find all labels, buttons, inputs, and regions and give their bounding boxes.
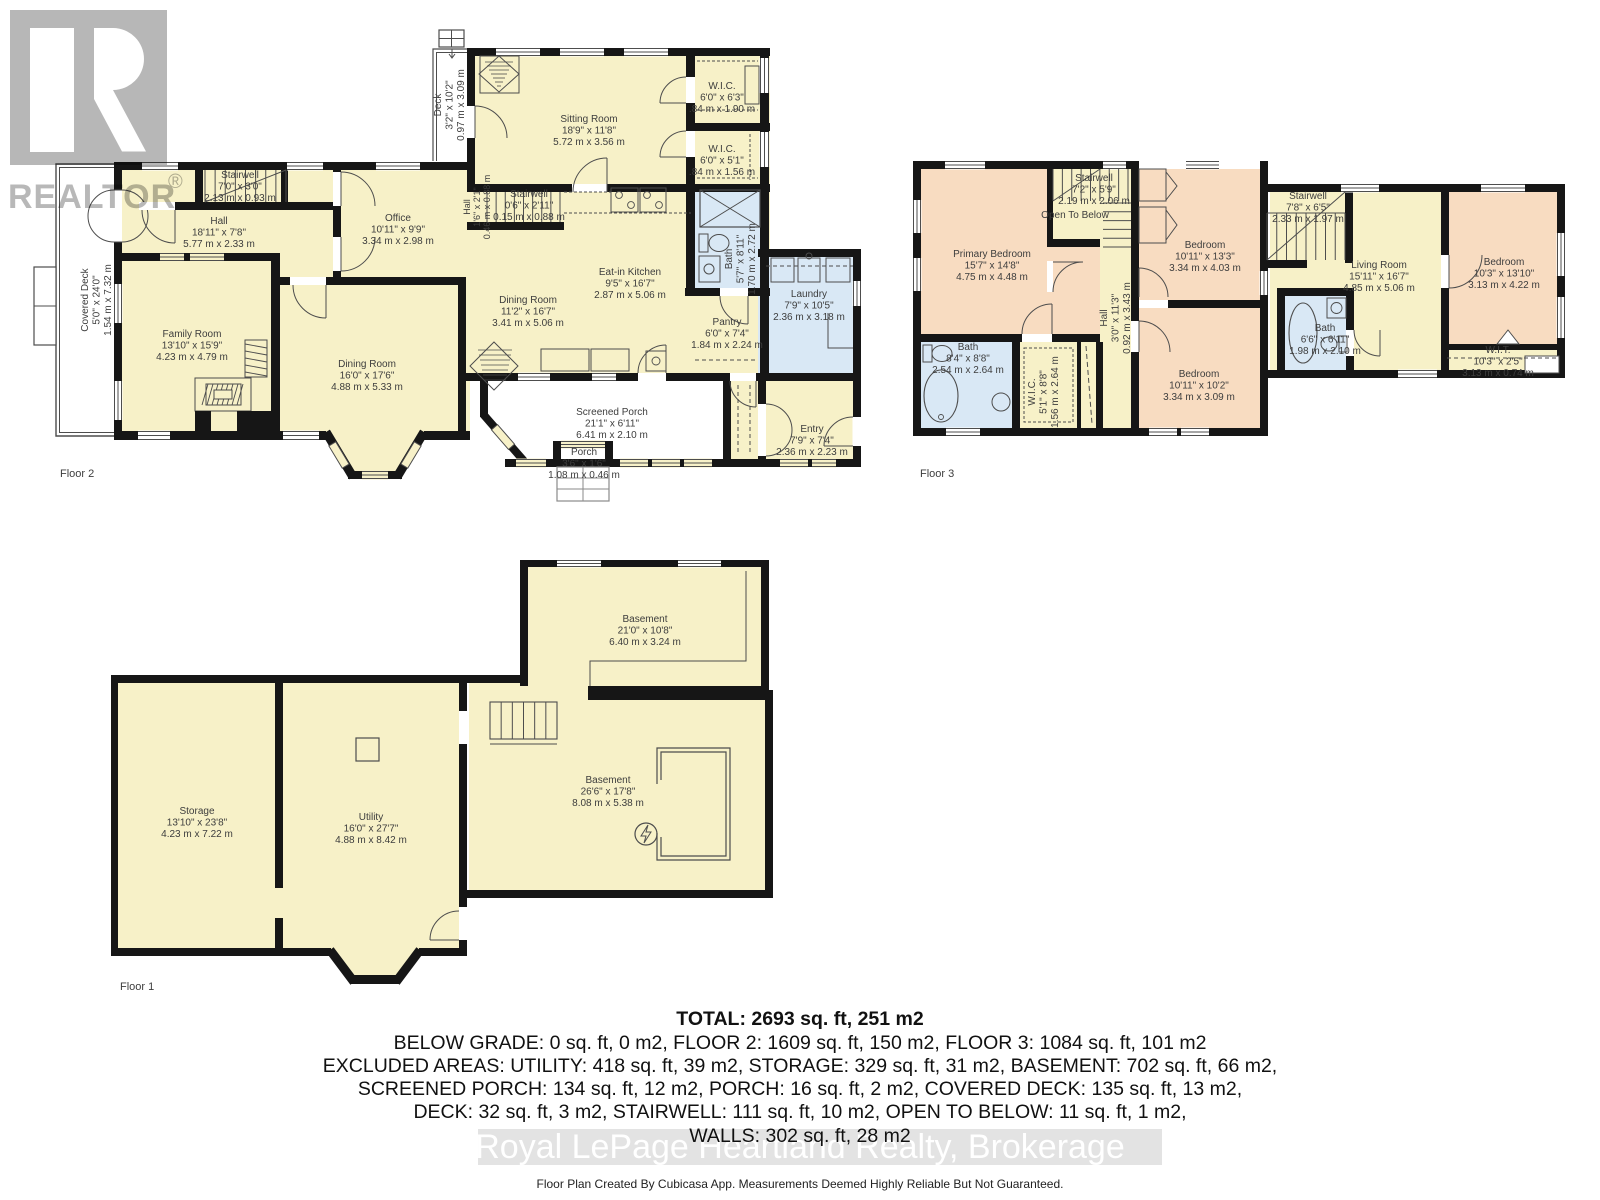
svg-text:7'2" x 5'9": 7'2" x 5'9" <box>1072 185 1116 196</box>
svg-text:Hall: Hall <box>210 216 227 227</box>
svg-text:6'0" x 7'4": 6'0" x 7'4" <box>705 329 749 340</box>
svg-text:W.I.T.: W.I.T. <box>1486 345 1511 356</box>
svg-text:Family Room: Family Room <box>163 329 222 340</box>
svg-text:5'1" x 8'8": 5'1" x 8'8" <box>1039 370 1050 414</box>
svg-text:11'2" x 16'7": 11'2" x 16'7" <box>501 307 556 318</box>
svg-text:0.46 m x 0.88 m: 0.46 m x 0.88 m <box>482 175 492 240</box>
svg-text:5.72 m x 3.56 m: 5.72 m x 3.56 m <box>553 137 625 148</box>
svg-text:3.34 m x 4.03 m: 3.34 m x 4.03 m <box>1169 263 1241 274</box>
svg-text:.84 m x 1.56 m: .84 m x 1.56 m <box>689 167 755 178</box>
svg-text:4.88 m x 5.33 m: 4.88 m x 5.33 m <box>331 382 403 393</box>
svg-text:REALTOR: REALTOR <box>8 178 176 216</box>
svg-text:2.36 m x 2.23 m: 2.36 m x 2.23 m <box>776 447 848 458</box>
svg-text:Sitting Room: Sitting Room <box>560 114 617 125</box>
svg-text:4.85 m x 5.06 m: 4.85 m x 5.06 m <box>1343 283 1415 294</box>
svg-text:Porch: Porch <box>571 447 597 458</box>
svg-text:2.54 m x 2.64 m: 2.54 m x 2.64 m <box>932 365 1004 376</box>
svg-text:Pantry: Pantry <box>713 317 742 328</box>
svg-text:W.I.C.: W.I.C. <box>708 81 735 92</box>
svg-text:4.75 m x 4.48 m: 4.75 m x 4.48 m <box>956 272 1028 283</box>
svg-text:3.41 m x 5.06 m: 3.41 m x 5.06 m <box>492 318 564 329</box>
svg-text:Bath: Bath <box>724 249 735 270</box>
svg-text:W.I.C.: W.I.C. <box>708 144 735 155</box>
svg-text:3'0" x 11'3": 3'0" x 11'3" <box>1111 293 1122 342</box>
svg-text:6'0" x 6'3": 6'0" x 6'3" <box>700 93 744 104</box>
svg-text:5'7" x 8'11": 5'7" x 8'11" <box>736 234 747 283</box>
svg-text:Stairwell: Stairwell <box>1289 191 1327 202</box>
svg-text:16'0" x 27'7": 16'0" x 27'7" <box>344 824 399 835</box>
svg-text:10'11" x 10'2": 10'11" x 10'2" <box>1169 381 1229 392</box>
svg-text:Deck: Deck <box>433 93 444 117</box>
svg-text:Storage: Storage <box>179 806 214 817</box>
svg-text:2.13 m x 0.93 m: 2.13 m x 0.93 m <box>204 193 276 204</box>
svg-text:Basement: Basement <box>585 775 630 786</box>
svg-text:1'6" x 2'1": 1'6" x 2'1" <box>472 187 482 226</box>
svg-text:Floor Plan Created By Cubicasa: Floor Plan Created By Cubicasa App. Meas… <box>537 1177 1064 1191</box>
svg-text:4.23 m x 4.79 m: 4.23 m x 4.79 m <box>156 352 228 363</box>
svg-text:Bedroom: Bedroom <box>1484 257 1525 268</box>
svg-text:Primary Bedroom: Primary Bedroom <box>953 249 1031 260</box>
svg-text:Bath: Bath <box>958 342 979 353</box>
svg-text:3.13 m x 4.22 m: 3.13 m x 4.22 m <box>1468 280 1540 291</box>
svg-text:Floor 1: Floor 1 <box>120 981 154 993</box>
svg-text:1.56 m x 2.64 m: 1.56 m x 2.64 m <box>1050 356 1061 428</box>
svg-text:13'10" x 15'9": 13'10" x 15'9" <box>162 341 223 352</box>
svg-text:13'10" x 23'8": 13'10" x 23'8" <box>167 818 228 829</box>
svg-text:0.92 m x 3.43 m: 0.92 m x 3.43 m <box>1122 282 1133 354</box>
svg-text:2.19 m x 2.06 m: 2.19 m x 2.06 m <box>1058 196 1130 207</box>
svg-text:3.34 m x 2.98 m: 3.34 m x 2.98 m <box>362 236 434 247</box>
svg-text:5'0" x 24'0": 5'0" x 24'0" <box>92 275 103 325</box>
svg-text:7'0" x 3'0": 7'0" x 3'0" <box>218 182 262 193</box>
svg-text:Screened Porch: Screened Porch <box>576 407 648 418</box>
svg-text:4.88 m x 8.42 m: 4.88 m x 8.42 m <box>335 835 407 846</box>
svg-text:Entry: Entry <box>800 424 823 435</box>
svg-text:1.08 m x 0.46 m: 1.08 m x 0.46 m <box>548 470 620 481</box>
svg-text:2.36 m x 3.18 m: 2.36 m x 3.18 m <box>773 312 845 323</box>
svg-text:Dining Room: Dining Room <box>499 295 557 306</box>
svg-text:9'5" x 16'7": 9'5" x 16'7" <box>605 279 655 290</box>
svg-text:SCREENED PORCH: 134 sq. ft, 12: SCREENED PORCH: 134 sq. ft, 12 m2, PORCH… <box>358 1078 1242 1100</box>
svg-text:Office: Office <box>385 213 411 224</box>
svg-text:6.40 m x 3.24 m: 6.40 m x 3.24 m <box>609 637 681 648</box>
svg-text:2.87 m x 5.06 m: 2.87 m x 5.06 m <box>594 290 666 301</box>
svg-text:3'6" x 1'6": 3'6" x 1'6" <box>562 459 606 470</box>
svg-text:Stairwell: Stairwell <box>221 170 259 181</box>
svg-text:4.23 m x 7.22 m: 4.23 m x 7.22 m <box>161 829 233 840</box>
svg-text:Laundry: Laundry <box>791 289 827 300</box>
svg-text:Dining Room: Dining Room <box>338 359 396 370</box>
svg-text:Living Room: Living Room <box>1351 260 1407 271</box>
svg-text:.84 m x 1.90 m: .84 m x 1.90 m <box>689 104 755 115</box>
svg-text:Bedroom: Bedroom <box>1179 369 1220 380</box>
svg-text:1.84 m x 2.24 m: 1.84 m x 2.24 m <box>691 340 763 351</box>
svg-text:0.97 m x 3.09 m: 0.97 m x 3.09 m <box>456 69 467 141</box>
svg-text:Bedroom: Bedroom <box>1185 240 1226 251</box>
svg-text:21'0" x 10'8": 21'0" x 10'8" <box>618 626 673 637</box>
svg-text:7'9" x 10'5": 7'9" x 10'5" <box>784 301 834 312</box>
svg-text:7'9" x 7'4": 7'9" x 7'4" <box>790 436 834 447</box>
svg-text:Stairwell: Stairwell <box>510 189 548 200</box>
svg-text:Eat-in Kitchen: Eat-in Kitchen <box>599 267 661 278</box>
svg-text:6'6" x 6'11": 6'6" x 6'11" <box>1301 335 1350 346</box>
svg-text:1.54 m x 7.32 m: 1.54 m x 7.32 m <box>103 264 114 336</box>
svg-text:®: ® <box>168 171 183 193</box>
svg-text:1.98 m x 2.10 m: 1.98 m x 2.10 m <box>1289 346 1361 357</box>
svg-text:Covered Deck: Covered Deck <box>80 267 91 331</box>
svg-text:Stairwell: Stairwell <box>1075 173 1113 184</box>
svg-text:Utility: Utility <box>359 812 383 823</box>
svg-text:Basement: Basement <box>622 614 667 625</box>
svg-text:0.15 m x 0.88 m: 0.15 m x 0.88 m <box>493 212 565 223</box>
svg-text:21'1" x 6'11": 21'1" x 6'11" <box>585 419 640 430</box>
svg-text:W.I.C.: W.I.C. <box>1027 378 1038 405</box>
svg-text:8'4" x 8'8": 8'4" x 8'8" <box>946 354 990 365</box>
svg-text:TOTAL: 2693 sq. ft, 251 m2: TOTAL: 2693 sq. ft, 251 m2 <box>676 1008 924 1030</box>
svg-text:10'3" x 13'10": 10'3" x 13'10" <box>1474 269 1535 280</box>
svg-text:0'6" x 2'11": 0'6" x 2'11" <box>505 201 554 212</box>
svg-text:6.41 m x 2.10 m: 6.41 m x 2.10 m <box>576 430 648 441</box>
svg-text:8.08 m x 5.38 m: 8.08 m x 5.38 m <box>572 798 644 809</box>
svg-text:3'2" x 10'2": 3'2" x 10'2" <box>445 80 456 130</box>
svg-text:5.77 m x 2.33 m: 5.77 m x 2.33 m <box>183 239 255 250</box>
svg-text:WALLS: 302 sq. ft, 28 m2: WALLS: 302 sq. ft, 28 m2 <box>689 1125 910 1147</box>
svg-text:7'8" x 6'5": 7'8" x 6'5" <box>1286 203 1330 214</box>
svg-text:Hall: Hall <box>1099 309 1110 326</box>
svg-text:Hall: Hall <box>462 199 472 215</box>
svg-text:1.70 m x 2.72 m: 1.70 m x 2.72 m <box>747 223 758 295</box>
svg-text:DECK: 32 sq. ft, 3 m2, STAIRWE: DECK: 32 sq. ft, 3 m2, STAIRWELL: 111 sq… <box>413 1101 1186 1123</box>
svg-text:6'0" x 5'1": 6'0" x 5'1" <box>700 156 744 167</box>
svg-text:3.13 m x 0.74 m: 3.13 m x 0.74 m <box>1462 368 1534 379</box>
svg-text:Bath: Bath <box>1315 323 1336 334</box>
svg-text:18'9" x 11'8": 18'9" x 11'8" <box>562 126 617 137</box>
svg-text:15'7" x 14'8": 15'7" x 14'8" <box>965 261 1020 272</box>
svg-text:2.33 m x 1.97 m: 2.33 m x 1.97 m <box>1272 214 1344 225</box>
svg-text:10'11" x 13'3": 10'11" x 13'3" <box>1175 252 1235 263</box>
svg-text:Open To Below: Open To Below <box>1041 210 1109 221</box>
svg-text:10'3" x 2'5": 10'3" x 2'5" <box>1473 357 1523 368</box>
svg-text:18'11" x 7'8": 18'11" x 7'8" <box>192 228 247 239</box>
svg-text:15'11" x 16'7": 15'11" x 16'7" <box>1349 272 1409 283</box>
svg-text:Floor 2: Floor 2 <box>60 468 94 480</box>
svg-text:16'0" x 17'6": 16'0" x 17'6" <box>340 371 395 382</box>
svg-text:EXCLUDED AREAS: UTILITY: 418 s: EXCLUDED AREAS: UTILITY: 418 sq. ft, 39 … <box>323 1055 1277 1077</box>
svg-text:BELOW GRADE: 0 sq. ft, 0 m2, F: BELOW GRADE: 0 sq. ft, 0 m2, FLOOR 2: 16… <box>394 1032 1207 1054</box>
svg-text:Floor 3: Floor 3 <box>920 468 954 480</box>
svg-text:10'11" x 9'9": 10'11" x 9'9" <box>371 225 426 236</box>
svg-text:3.34 m x 3.09 m: 3.34 m x 3.09 m <box>1163 392 1235 403</box>
svg-text:26'6" x 17'8": 26'6" x 17'8" <box>581 787 636 798</box>
